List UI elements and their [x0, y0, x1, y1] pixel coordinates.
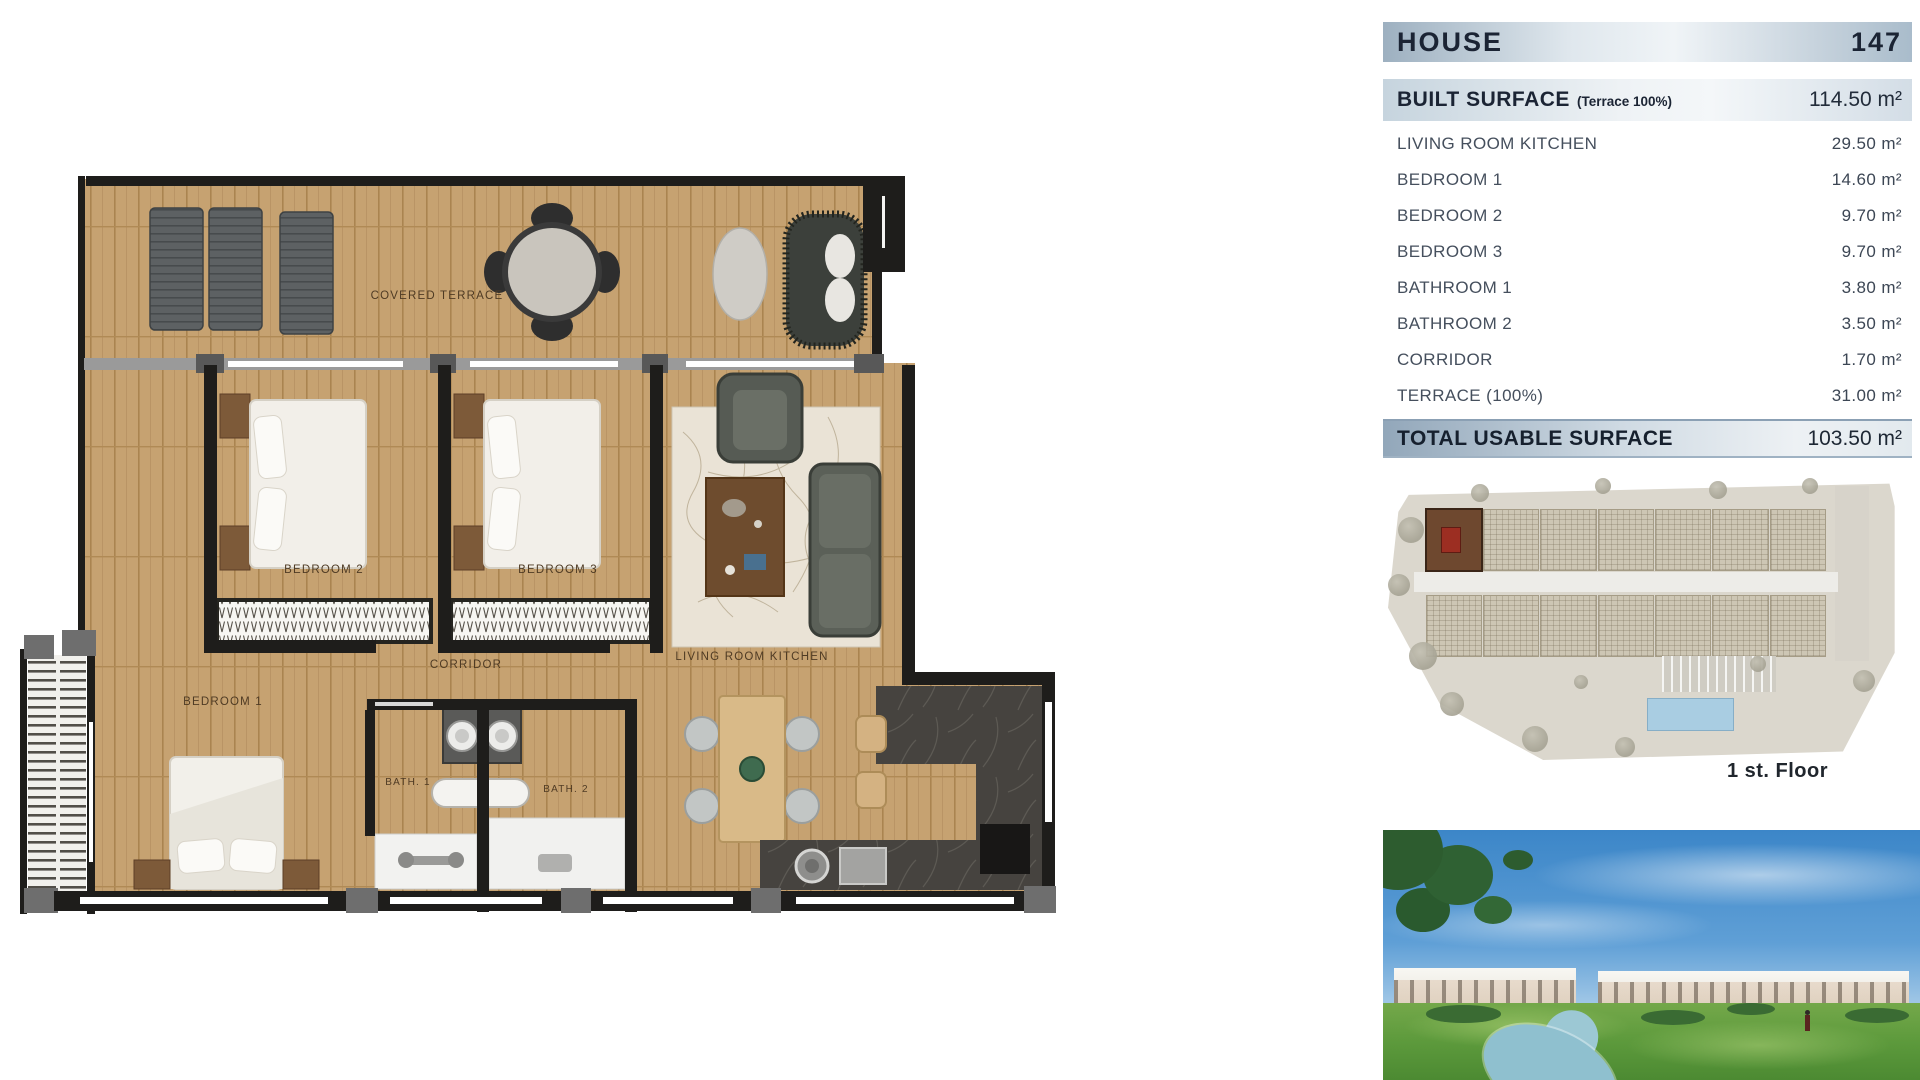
- room-value: 3.80 m²: [1842, 278, 1902, 298]
- site-plan-tree: [1595, 478, 1611, 494]
- room-row: LIVING ROOM KITCHEN 29.50 m²: [1383, 126, 1912, 162]
- sun-lounger: [280, 212, 333, 334]
- room-label: TERRACE (100%): [1397, 386, 1543, 406]
- label-corridor: CORRIDOR: [430, 659, 502, 671]
- bar-stool: [856, 772, 886, 808]
- sun-lounger: [150, 208, 203, 330]
- site-plan-unit: [1599, 596, 1653, 655]
- label-bath2: BATH. 2: [543, 784, 588, 795]
- room-label: CORRIDOR: [1397, 350, 1493, 370]
- house-header-bar: HOUSE 147: [1383, 22, 1912, 62]
- pillow: [487, 415, 521, 480]
- site-plan-road-vertical: [1835, 486, 1869, 661]
- pillow: [487, 487, 521, 552]
- site-plan-tree: [1709, 481, 1727, 499]
- bath2-fixture: [538, 854, 572, 872]
- room-row: BATHROOM 1 3.80 m²: [1383, 270, 1912, 306]
- pillow: [229, 838, 278, 874]
- wardrobe: [451, 600, 651, 642]
- fridge: [980, 824, 1030, 874]
- site-plan-tree: [1853, 670, 1875, 692]
- site-plan-unit: [1656, 510, 1710, 569]
- coffee-table: [706, 478, 784, 596]
- room-row: BATHROOM 2 3.50 m²: [1383, 306, 1912, 342]
- room-value: 29.50 m²: [1832, 134, 1902, 154]
- room-label: BEDROOM 3: [1397, 242, 1503, 262]
- house-title: HOUSE: [1397, 27, 1503, 58]
- room-value: 3.50 m²: [1842, 314, 1902, 334]
- render-golfer: [1805, 1015, 1810, 1031]
- room-value: 1.70 m²: [1842, 350, 1902, 370]
- site-plan-pool: [1647, 698, 1734, 731]
- room-value: 9.70 m²: [1842, 242, 1902, 262]
- label-covered-terrace: COVERED TERRACE: [371, 290, 504, 302]
- label-bedroom3: BEDROOM 3: [518, 564, 598, 576]
- nightstand: [454, 394, 484, 438]
- built-surface-bar: BUILT SURFACE(Terrace 100%) 114.50 m²: [1383, 79, 1912, 121]
- room-label: BEDROOM 2: [1397, 206, 1503, 226]
- nightstand: [220, 394, 250, 438]
- shower-floor: [489, 818, 625, 889]
- stove: [840, 848, 886, 884]
- render-bush: [1727, 1003, 1775, 1016]
- site-plan-unit-highlighted: [1427, 510, 1481, 569]
- total-surface-value: 103.50 m²: [1807, 427, 1902, 451]
- sofa: [810, 464, 880, 636]
- label-living: LIVING ROOM KITCHEN: [675, 651, 828, 663]
- room-label: LIVING ROOM KITCHEN: [1397, 134, 1597, 154]
- pillow: [253, 487, 287, 552]
- room-value: 14.60 m²: [1832, 170, 1902, 190]
- house-number: 147: [1851, 27, 1902, 58]
- site-plan-row-bottom: [1427, 596, 1825, 655]
- nightstand: [454, 526, 484, 570]
- dining-chair: [785, 789, 819, 823]
- site-plan-unit: [1713, 510, 1767, 569]
- site-plan-tree: [1802, 478, 1818, 494]
- nightstand: [283, 860, 319, 889]
- room-row: BEDROOM 1 14.60 m²: [1383, 162, 1912, 198]
- pillow: [177, 838, 226, 874]
- render-bush: [1845, 1008, 1909, 1023]
- site-plan-unit: [1541, 510, 1595, 569]
- pillow: [253, 415, 287, 480]
- page: COVERED TERRACE BEDROOM 2 BEDROOM 3 CORR…: [0, 0, 1920, 1080]
- armchair: [718, 374, 802, 462]
- room-label: BATHROOM 1: [1397, 278, 1512, 298]
- sun-lounger: [209, 208, 262, 330]
- site-plan-unit: [1656, 596, 1710, 655]
- room-label: BEDROOM 1: [1397, 170, 1503, 190]
- label-bath1: BATH. 1: [385, 777, 430, 788]
- wardrobe: [217, 600, 431, 642]
- label-bedroom1: BEDROOM 1: [183, 696, 263, 708]
- nightstand: [134, 860, 170, 889]
- built-surface-value: 114.50 m²: [1809, 88, 1902, 112]
- room-label: BATHROOM 2: [1397, 314, 1512, 334]
- living-room: [672, 374, 880, 647]
- site-plan-row-top: [1427, 510, 1825, 569]
- site-plan-tree: [1440, 692, 1464, 716]
- render-bush: [1426, 1005, 1501, 1023]
- room-value: 9.70 m²: [1842, 206, 1902, 226]
- built-surface-label: BUILT SURFACE: [1397, 88, 1570, 111]
- site-plan-unit: [1484, 510, 1538, 569]
- room-row: TERRACE (100%) 31.00 m²: [1383, 378, 1912, 414]
- building-render-photo: [1383, 830, 1920, 1080]
- site-plan-unit: [1771, 596, 1825, 655]
- dining-chair: [685, 789, 719, 823]
- total-surface-bar: TOTAL USABLE SURFACE 103.50 m²: [1383, 419, 1912, 458]
- centerpiece: [740, 757, 764, 781]
- dining-chair: [685, 717, 719, 751]
- site-plan-unit: [1427, 596, 1481, 655]
- site-plan-tree: [1750, 656, 1766, 672]
- bar-stool: [856, 716, 886, 752]
- site-plan-tree: [1388, 574, 1410, 596]
- terrace-rug: [713, 228, 767, 320]
- built-surface-note: (Terrace 100%): [1577, 94, 1672, 109]
- total-surface-label: TOTAL USABLE SURFACE: [1397, 427, 1673, 451]
- room-value: 31.00 m²: [1832, 386, 1902, 406]
- room-row: BEDROOM 3 9.70 m²: [1383, 234, 1912, 270]
- render-bush: [1641, 1010, 1705, 1025]
- nightstand: [220, 526, 250, 570]
- dining-chair: [785, 717, 819, 751]
- kitchen-sink: [796, 850, 828, 882]
- site-plan-caption: 1 st. Floor: [1650, 760, 1905, 783]
- room-list: LIVING ROOM KITCHEN 29.50 m² BEDROOM 1 1…: [1383, 126, 1912, 414]
- site-plan-unit: [1484, 596, 1538, 655]
- label-bedroom2: BEDROOM 2: [284, 564, 364, 576]
- room-row: CORRIDOR 1.70 m²: [1383, 342, 1912, 378]
- site-plan-tree: [1409, 642, 1437, 670]
- room-row: BEDROOM 2 9.70 m²: [1383, 198, 1912, 234]
- site-plan-unit: [1541, 596, 1595, 655]
- hanging-chair: [786, 214, 864, 346]
- site-plan: [1388, 478, 1905, 760]
- site-plan-road: [1414, 572, 1838, 592]
- site-plan-unit: [1713, 596, 1767, 655]
- site-plan-unit: [1599, 510, 1653, 569]
- floor-plan: COVERED TERRACE BEDROOM 2 BEDROOM 3 CORR…: [18, 172, 1073, 947]
- site-plan-tree: [1471, 484, 1489, 502]
- site-plan-unit: [1771, 510, 1825, 569]
